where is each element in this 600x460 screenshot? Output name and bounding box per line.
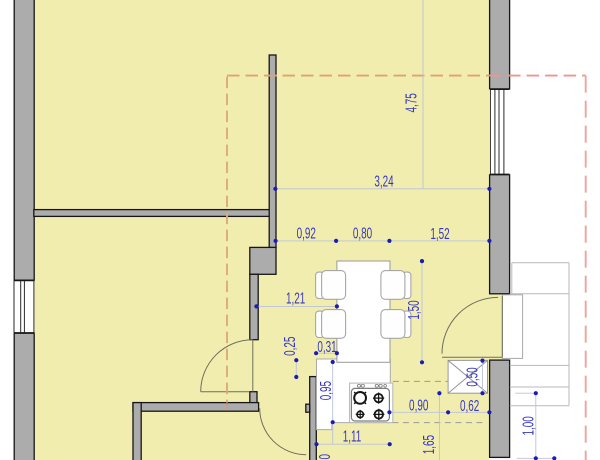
svg-text:0,80: 0,80 [353, 224, 372, 242]
svg-text:1,21: 1,21 [286, 289, 305, 307]
svg-text:1,65: 1,65 [420, 435, 438, 454]
svg-text:0,31: 0,31 [317, 338, 336, 356]
svg-text:0,62: 0,62 [460, 396, 479, 414]
svg-text:0,50: 0,50 [463, 367, 481, 386]
svg-text:0,95: 0,95 [316, 381, 334, 400]
svg-text:4,75: 4,75 [402, 93, 420, 112]
svg-text:1,11: 1,11 [343, 427, 362, 445]
svg-text:0,92: 0,92 [297, 224, 316, 242]
svg-text:1,52: 1,52 [430, 224, 449, 242]
svg-text:1,50: 1,50 [405, 300, 423, 319]
svg-text:1,00: 1,00 [519, 416, 537, 435]
svg-text:0: 0 [316, 454, 334, 460]
svg-text:0,90: 0,90 [409, 396, 428, 414]
svg-text:0,25: 0,25 [281, 337, 299, 356]
svg-text:3,24: 3,24 [374, 172, 393, 190]
